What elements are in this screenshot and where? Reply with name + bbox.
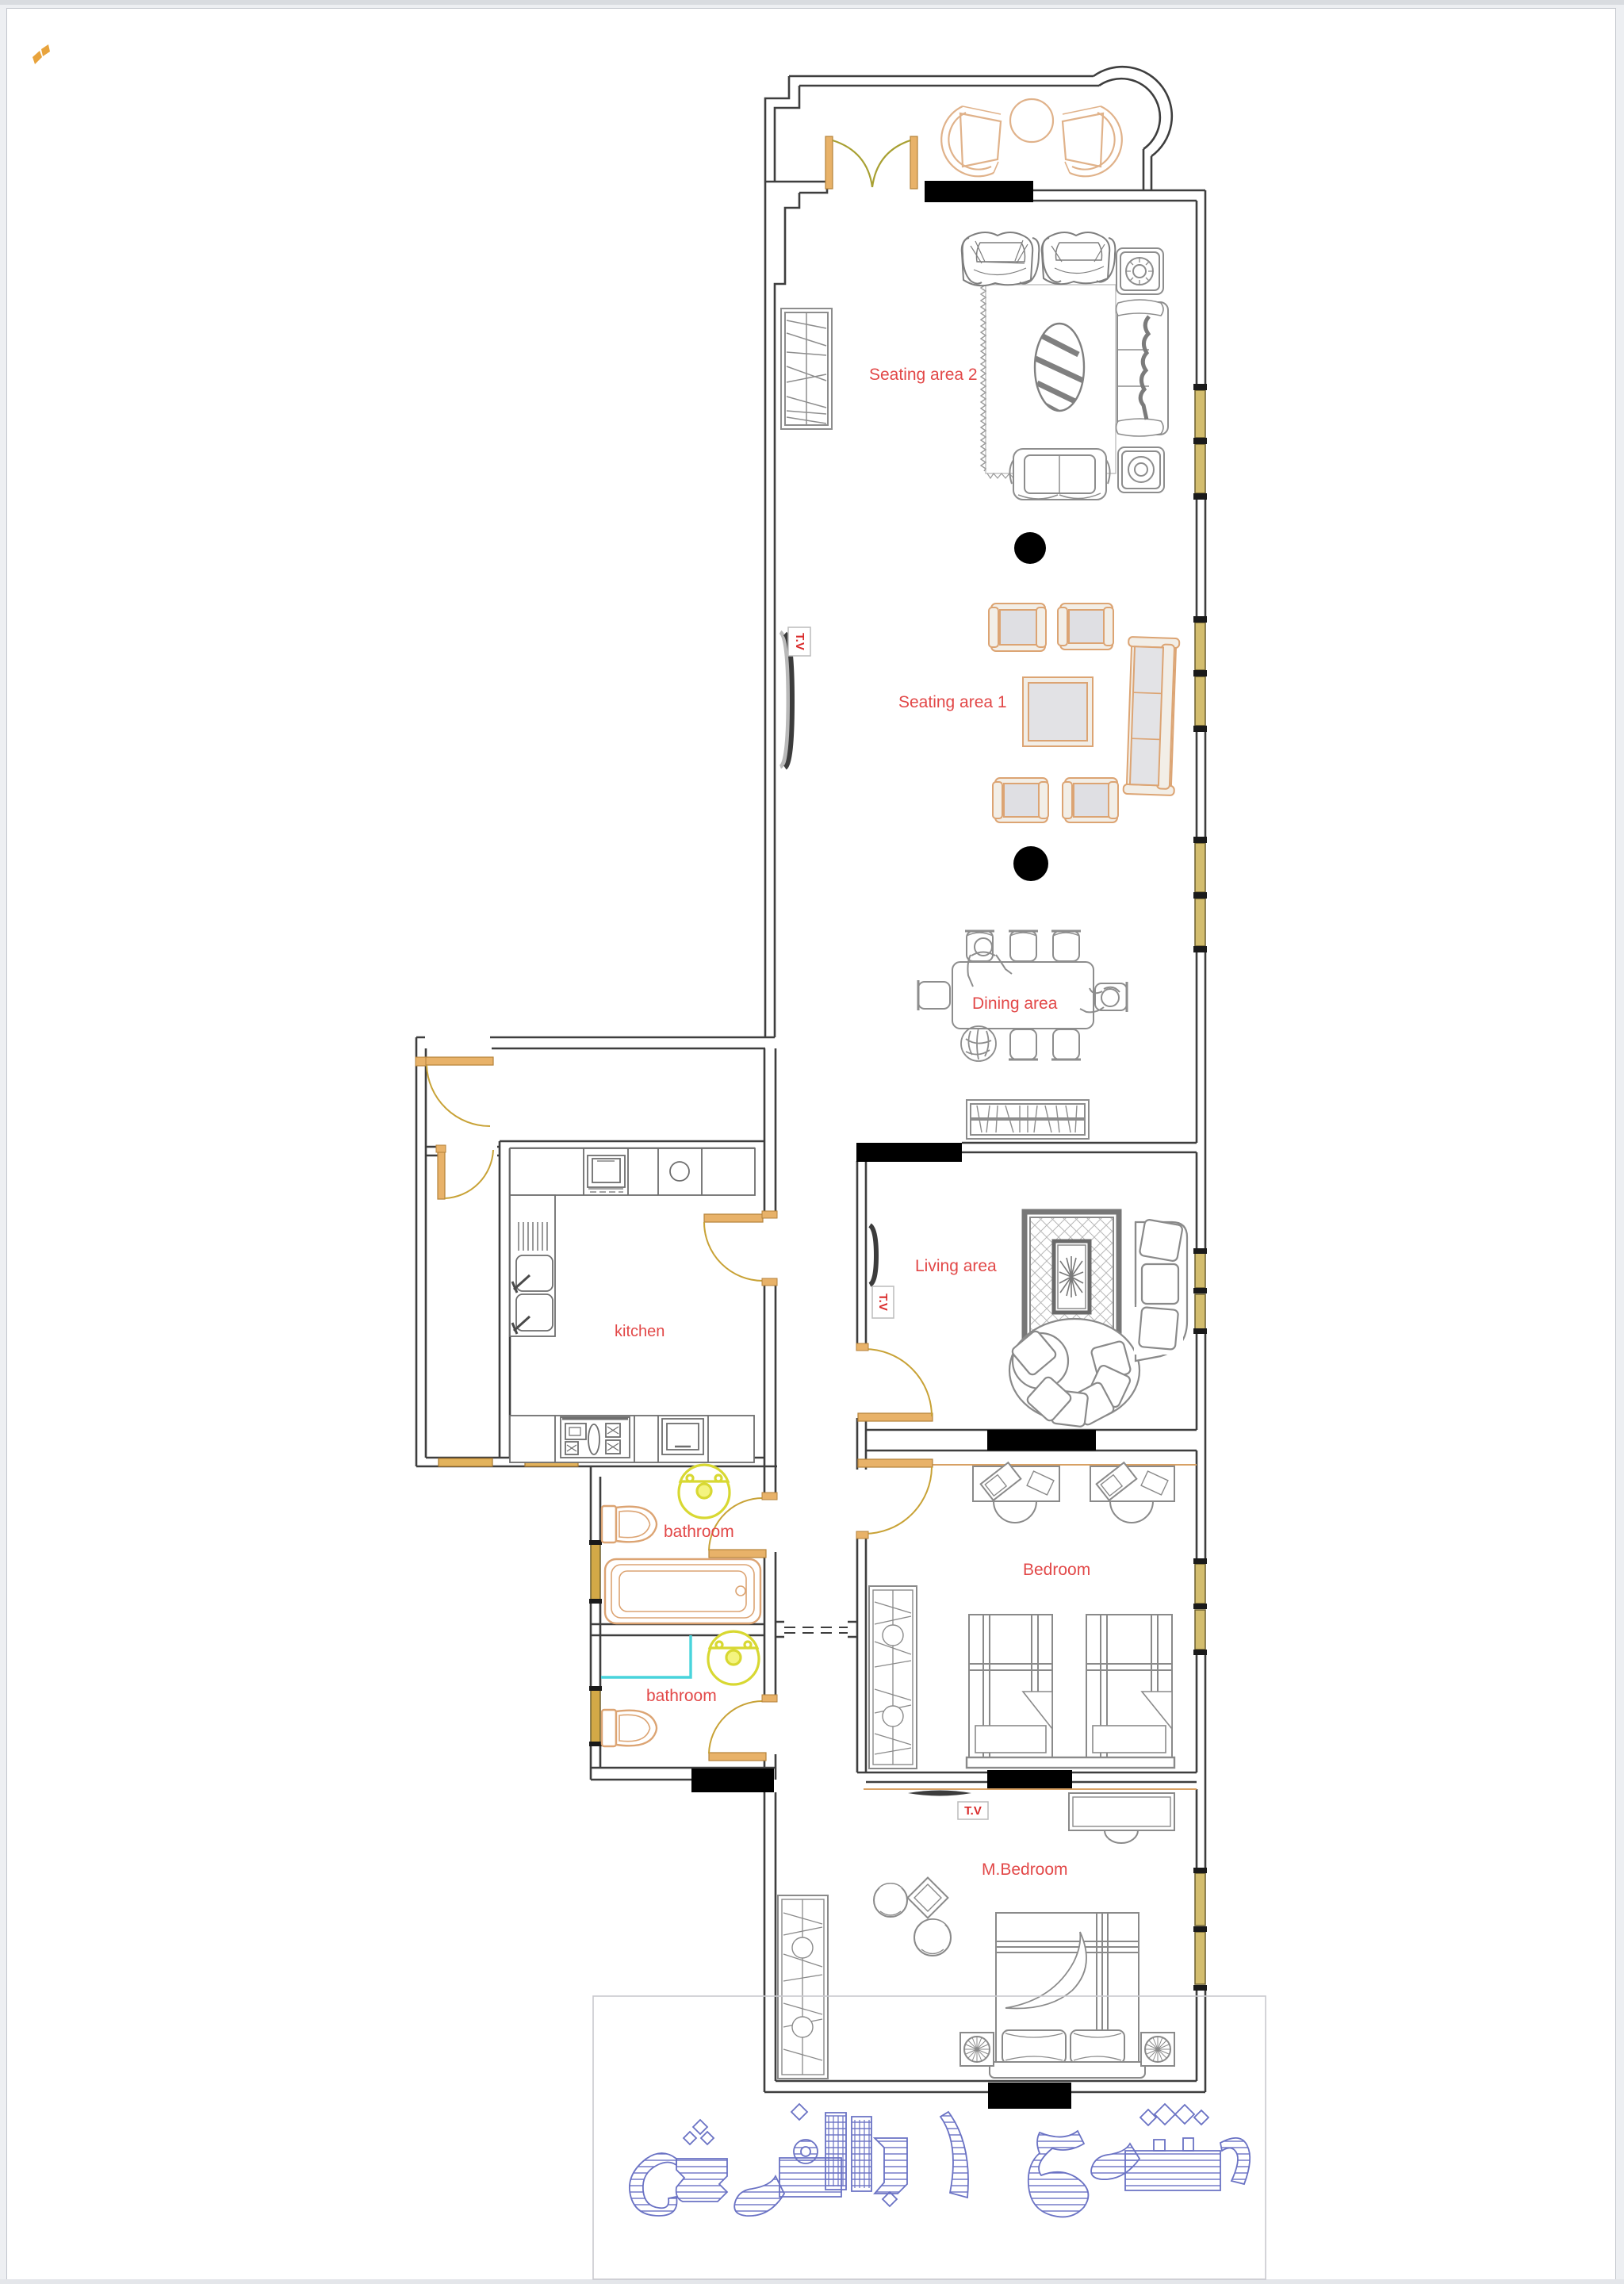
svg-text:Bedroom: Bedroom [1023,1561,1090,1579]
svg-text:M.Bedroom: M.Bedroom [982,1861,1068,1879]
svg-text:kitchen: kitchen [615,1323,665,1340]
svg-text:Dining area: Dining area [972,994,1058,1013]
svg-text:Living area: Living area [915,1257,997,1275]
svg-text:bathroom: bathroom [646,1687,717,1705]
svg-text:T.V: T.V [964,1804,982,1818]
svg-text:Seating area 2: Seating area 2 [869,366,978,384]
svg-text:T.V: T.V [793,633,806,650]
svg-text:T.V: T.V [876,1293,890,1311]
svg-text:Seating area 1: Seating area 1 [898,693,1007,711]
svg-text:bathroom: bathroom [664,1523,734,1541]
